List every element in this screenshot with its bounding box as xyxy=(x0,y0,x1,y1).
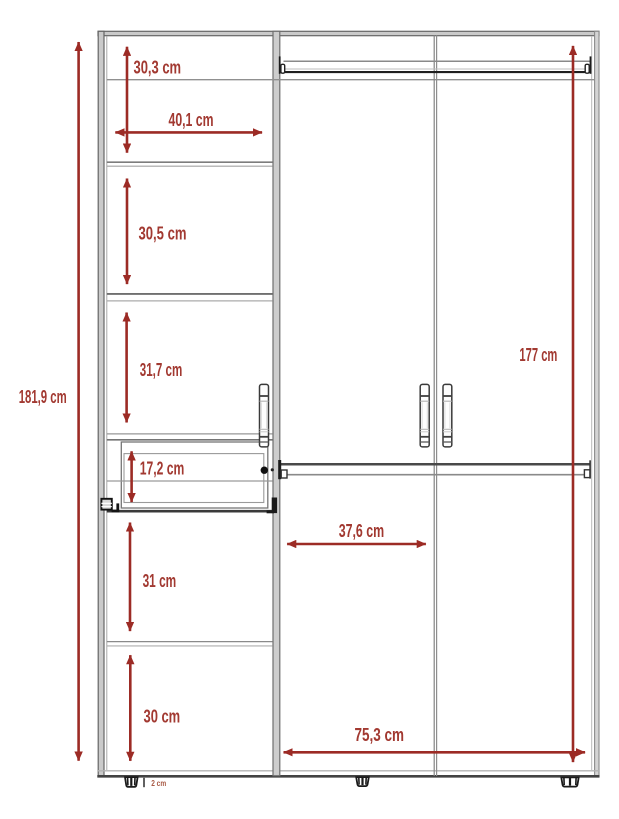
svg-text:181,9 cm: 181,9 cm xyxy=(19,387,67,407)
svg-text:17,2 cm: 17,2 cm xyxy=(140,459,185,479)
svg-text:30,5 cm: 30,5 cm xyxy=(139,224,187,244)
svg-text:40,1 cm: 40,1 cm xyxy=(169,110,214,130)
svg-text:31 cm: 31 cm xyxy=(143,571,177,591)
svg-text:30,3 cm: 30,3 cm xyxy=(134,58,182,78)
svg-text:31,7 cm: 31,7 cm xyxy=(140,360,183,380)
svg-text:37,6 cm: 37,6 cm xyxy=(339,521,385,541)
svg-text:75,3 cm: 75,3 cm xyxy=(355,725,405,745)
svg-text:2 cm: 2 cm xyxy=(151,778,166,788)
svg-text:30 cm: 30 cm xyxy=(144,706,181,726)
svg-text:177 cm: 177 cm xyxy=(519,345,557,365)
